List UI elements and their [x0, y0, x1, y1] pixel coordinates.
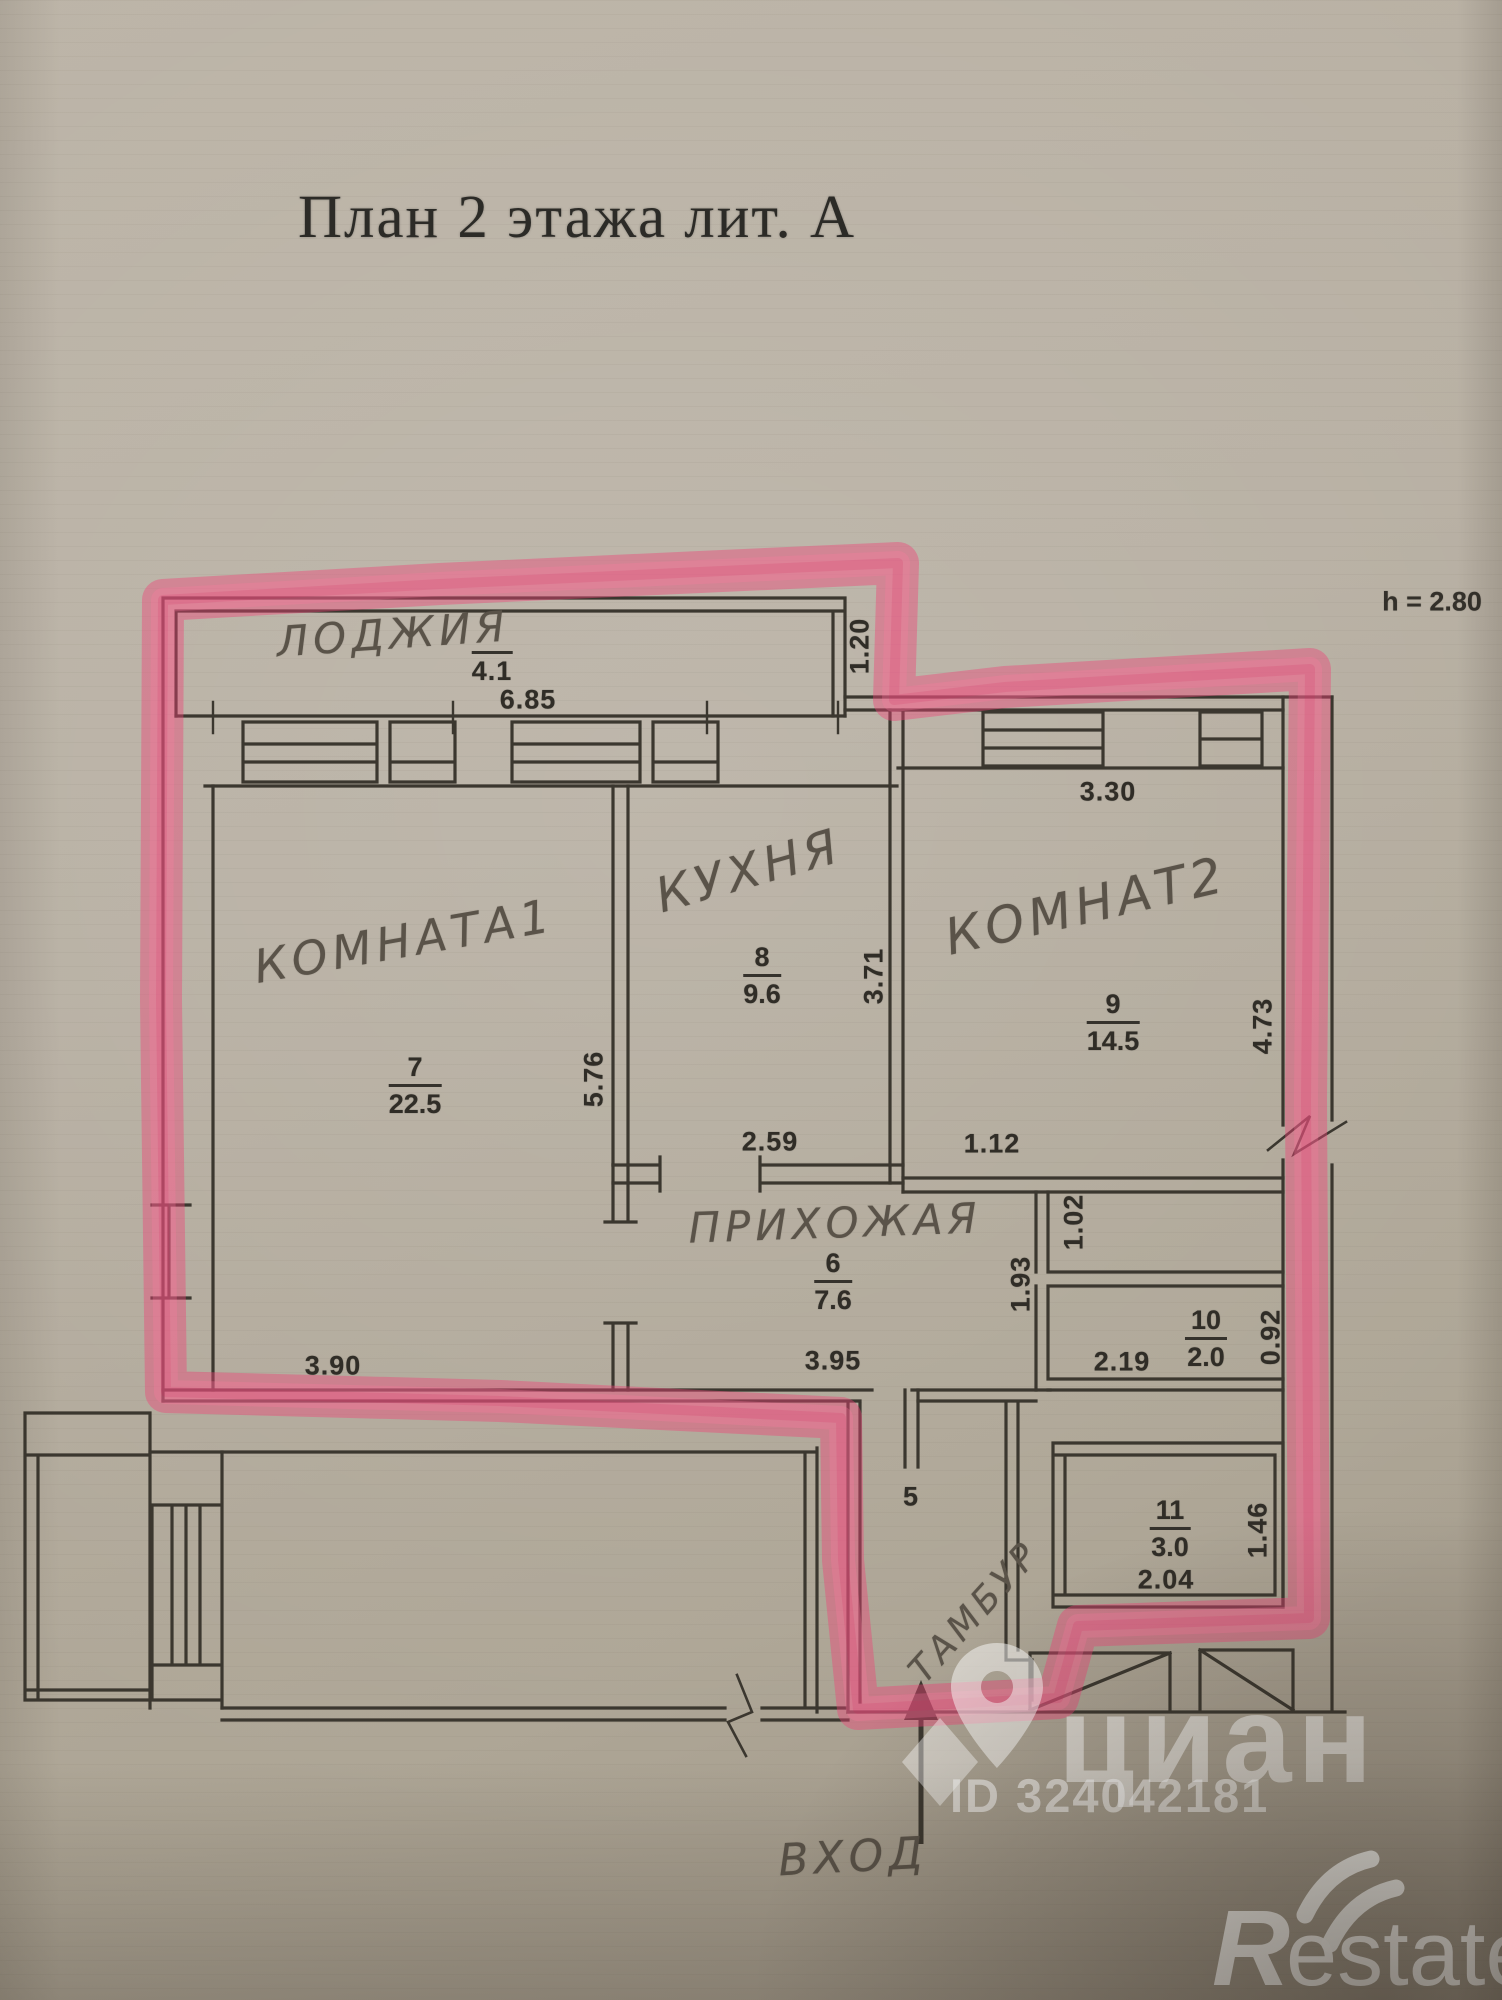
dimension-label: 1.93 [1006, 1256, 1037, 1313]
room-area: 22.5 [389, 1087, 442, 1120]
dimension-label: 0.92 [1256, 1309, 1287, 1366]
room-number: 8 [743, 942, 781, 977]
dimension-label: 5 [903, 1482, 919, 1513]
dimension-label: 1.46 [1243, 1502, 1274, 1559]
room-number: 6 [814, 1248, 852, 1283]
ceiling-height-note: h = 2.80 [1382, 587, 1482, 618]
dimension-label: 4.1 [472, 651, 513, 687]
room-area: 9.6 [743, 977, 781, 1010]
handwritten-room-label: КОМНАТ2 [940, 845, 1233, 966]
handwritten-room-label: ПРИХОЖАЯ [688, 1193, 983, 1252]
dimension-label: 1.02 [1059, 1194, 1090, 1251]
room-area: 7.6 [814, 1283, 852, 1316]
handwritten-room-label: ТАМБУР [901, 1533, 1049, 1691]
dimension-label: 1.12 [964, 1129, 1021, 1160]
room-number-area: 914.5 [1087, 989, 1140, 1057]
room-number-area: 102.0 [1185, 1305, 1227, 1373]
handwritten-room-label: ВХОД [777, 1828, 929, 1887]
handwritten-room-label: КУХНЯ [650, 818, 849, 924]
dimension-label: 3.95 [805, 1346, 862, 1377]
handwritten-room-label: КОМНАТА1 [250, 888, 558, 994]
room-number-area: 67.6 [814, 1248, 852, 1316]
room-area: 14.5 [1087, 1024, 1140, 1057]
dimension-label: 5.76 [579, 1051, 610, 1108]
floor-plan-photo: План 2 этажа лит. А h = 2.80 4.16.851.20… [0, 0, 1502, 2000]
page-title: План 2 этажа лит. А [298, 183, 856, 253]
dimension-label: 6.85 [500, 685, 557, 716]
labels-layer: План 2 этажа лит. А h = 2.80 4.16.851.20… [0, 0, 1502, 2000]
dimension-label: 3.71 [859, 948, 890, 1005]
dimension-label: 3.30 [1080, 777, 1137, 808]
dimension-label: 2.04 [1138, 1565, 1195, 1596]
room-number-area: 722.5 [389, 1052, 442, 1120]
room-area: 2.0 [1185, 1340, 1227, 1373]
room-number-area: 89.6 [743, 942, 781, 1010]
room-number: 10 [1185, 1305, 1227, 1340]
room-area: 3.0 [1150, 1530, 1191, 1563]
room-number: 11 [1150, 1495, 1191, 1530]
room-number: 9 [1087, 989, 1140, 1024]
room-number: 7 [389, 1052, 442, 1087]
dimension-label: 3.90 [305, 1351, 362, 1382]
dimension-label: 2.19 [1094, 1347, 1151, 1378]
dimension-label: 4.73 [1248, 998, 1279, 1055]
dimension-label: 2.59 [742, 1127, 799, 1158]
dimension-label: 1.20 [845, 618, 876, 675]
room-number-area: 113.0 [1150, 1495, 1191, 1563]
